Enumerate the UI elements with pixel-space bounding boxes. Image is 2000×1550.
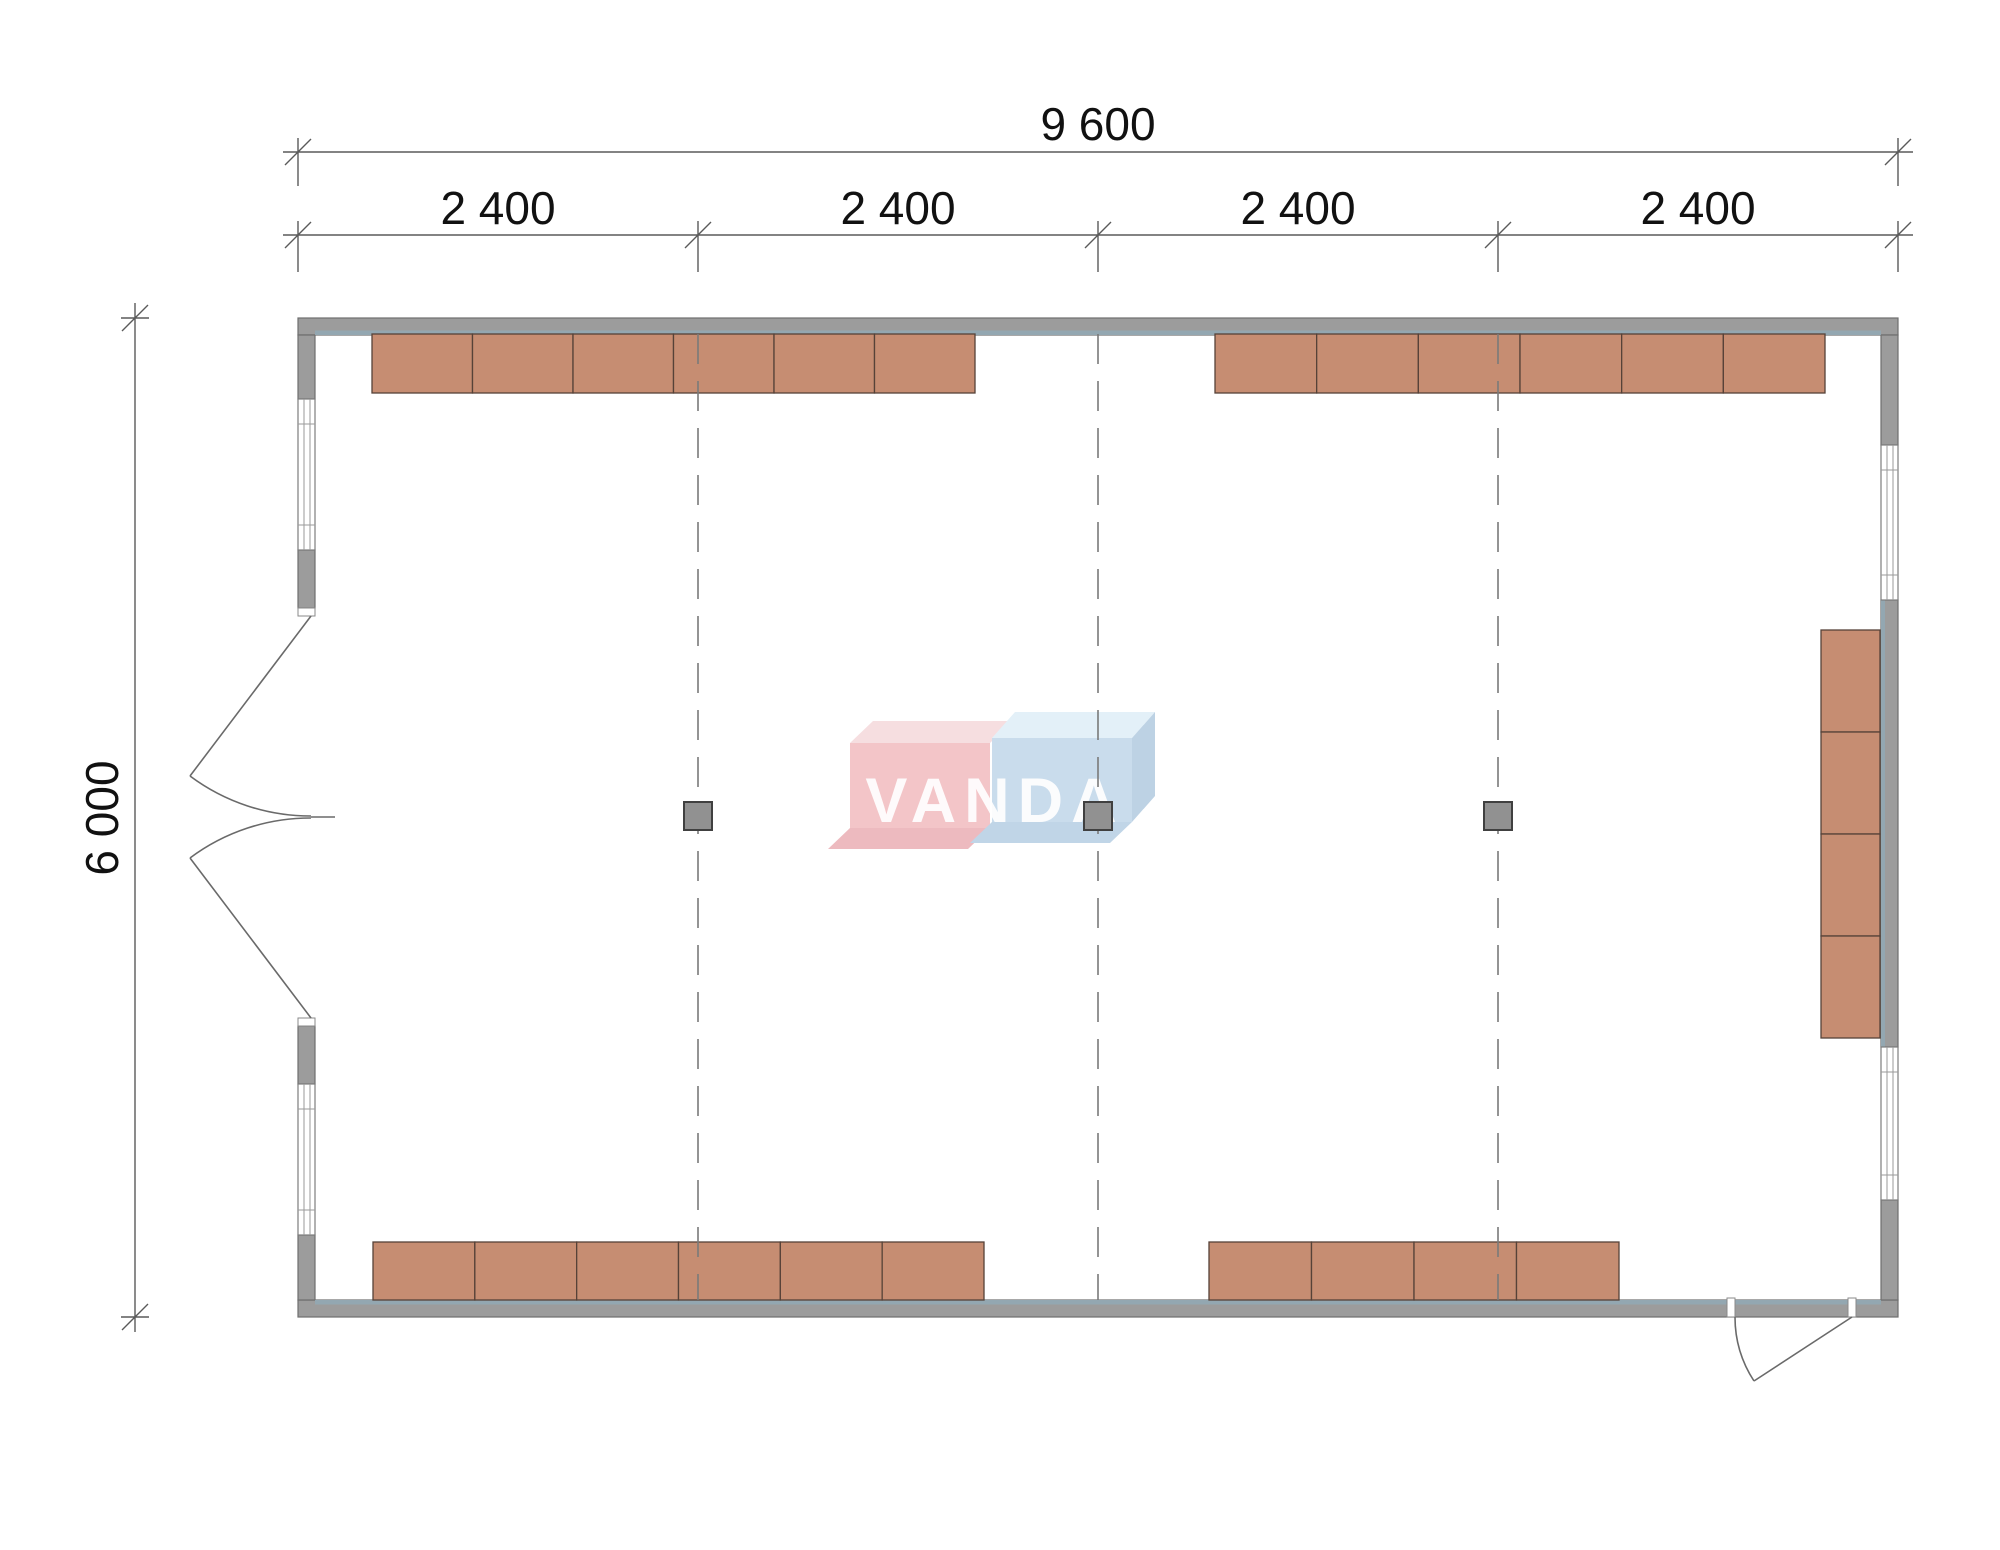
top-left-cabinet-row <box>372 334 975 393</box>
cabinet-block <box>875 334 976 393</box>
door-left-double <box>190 608 335 1026</box>
cabinet-block <box>1821 834 1880 936</box>
bottom-right-cabinet-row <box>1209 1242 1619 1300</box>
structural-column <box>684 802 712 830</box>
top-right-cabinet-row <box>1215 334 1825 393</box>
cabinet-block <box>1622 334 1724 393</box>
wall-left-top-stub <box>298 335 315 399</box>
cabinet-block <box>674 334 775 393</box>
bottom-left-cabinet-row <box>373 1242 984 1300</box>
cabinet-block <box>475 1242 577 1300</box>
wall-right-inner-strip <box>1881 600 1885 1047</box>
cabinet-block <box>1520 334 1622 393</box>
structural-column <box>1484 802 1512 830</box>
wall-bottom-inner-strip <box>315 1300 1881 1305</box>
cabinet-block <box>1312 1242 1415 1300</box>
cabinet-block <box>780 1242 882 1300</box>
dimension-height: 6 000 <box>76 303 149 1332</box>
window-right-bottom <box>1881 1047 1898 1200</box>
wall-left-lower-pier <box>298 1026 315 1084</box>
wall-right-top-stub <box>1881 335 1898 445</box>
cabinet-block <box>1821 630 1880 732</box>
cabinet-block <box>573 334 674 393</box>
door-jamb <box>1727 1298 1735 1317</box>
cabinet-block <box>372 334 473 393</box>
window-left-bottom <box>298 1084 315 1235</box>
right-wall-cabinet-stack <box>1821 630 1880 1038</box>
structural-column <box>1084 802 1112 830</box>
cabinet-block <box>1414 1242 1517 1300</box>
cabinet-block <box>373 1242 475 1300</box>
logo-blue-box-top <box>992 712 1155 738</box>
dimension-width-segments: 2 400 2 400 2 400 2 400 <box>283 182 1913 272</box>
window-left-top <box>298 399 315 550</box>
wall-right-bottom-stub <box>1881 1200 1898 1300</box>
cabinet-block <box>679 1242 781 1300</box>
cabinet-block <box>1517 1242 1620 1300</box>
door-jamb <box>298 608 315 616</box>
window-right-top <box>1881 445 1898 600</box>
cabinet-block <box>1821 936 1880 1038</box>
cabinet-block <box>1209 1242 1312 1300</box>
dimensions-layer: 9 600 2 400 2 400 2 400 2 400 6 000 <box>76 98 1913 1332</box>
floor-plan-canvas: VANDA <box>0 0 2000 1550</box>
cabinet-block <box>473 334 574 393</box>
columns-layer <box>684 802 1512 830</box>
cabinet-block <box>1723 334 1825 393</box>
cabinet-block <box>1821 732 1880 834</box>
floor-plan-page: VANDA <box>0 0 2000 1550</box>
dimension-label-segment-3: 2 400 <box>1240 182 1355 234</box>
dimension-label-segment-4: 2 400 <box>1640 182 1755 234</box>
cabinet-block <box>577 1242 679 1300</box>
dimension-label-segment-2: 2 400 <box>840 182 955 234</box>
cabinet-block <box>774 334 875 393</box>
cabinet-block <box>1215 334 1317 393</box>
door-leaf-swing <box>1735 1317 1852 1381</box>
cabinet-block <box>1317 334 1419 393</box>
dimension-label-height: 6 000 <box>76 760 128 875</box>
dimension-width-total: 9 600 <box>283 98 1913 186</box>
door-jamb <box>298 1018 315 1026</box>
cabinet-block <box>1418 334 1520 393</box>
dimension-label-segment-1: 2 400 <box>440 182 555 234</box>
door-jamb <box>1848 1298 1856 1317</box>
dimension-label-total-width: 9 600 <box>1040 98 1155 150</box>
wall-left-bottom-stub <box>298 1235 315 1300</box>
door-leaf-swing <box>190 616 335 1018</box>
cabinet-block <box>882 1242 984 1300</box>
logo-pink-box-top <box>850 721 1013 743</box>
wall-left-upper-pier <box>298 550 315 608</box>
